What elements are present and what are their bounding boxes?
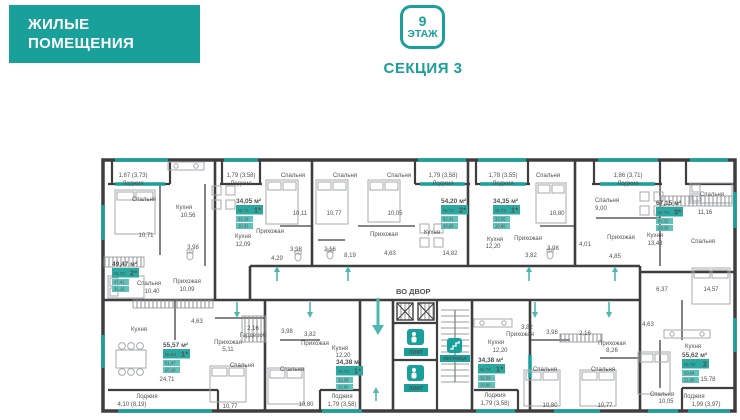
room-label: 2,16 xyxy=(247,326,259,332)
unit-number: № 72 xyxy=(443,208,454,213)
unit-subarea: 20,86 xyxy=(443,224,454,229)
unit-rooms: 1* xyxy=(354,367,361,376)
room-label: 3,82 xyxy=(304,332,316,338)
room-label: 3,98 xyxy=(546,330,558,336)
room-label: Прихожая xyxy=(370,232,398,238)
room-label: Спальня xyxy=(230,363,254,369)
unit-area: 55,62 м² xyxy=(682,352,708,359)
unit-subarea: 53,64 xyxy=(684,371,695,376)
room-label: Спальня xyxy=(280,367,304,373)
room-label: 4,10 (8,19) xyxy=(117,402,146,408)
entry-arrow-icon xyxy=(274,266,280,281)
room-label: 8,26 xyxy=(606,348,618,354)
room-label: 1,86 (3,71) xyxy=(613,173,642,179)
unit-badge[interactable]: 54,20 м²№ 722*52,4120,86 xyxy=(441,198,468,229)
room-label: Спальня xyxy=(650,392,674,398)
room-label: Спальня xyxy=(595,198,619,204)
room-label: Прихожая xyxy=(607,235,635,241)
room-label: Лоджия xyxy=(492,181,513,187)
unit-subarea: 65,32 xyxy=(658,219,669,224)
unit-rooms: 2 xyxy=(703,360,707,369)
unit-number: № 74 xyxy=(658,210,669,215)
room-label: 12,20 xyxy=(492,348,508,354)
room-label: 10,80 xyxy=(542,403,558,409)
unit-badge[interactable]: 55,57 м²№ 691*51,4720,16 xyxy=(163,342,190,373)
room-label: 1,79 (3,58) xyxy=(327,402,356,408)
room-label: Кухня xyxy=(487,237,503,243)
entry-arrow-icon xyxy=(373,387,379,401)
room-label: 4,63 xyxy=(642,322,654,328)
room-label: Спальня xyxy=(691,239,715,245)
room-label: 1,79 (3,58) xyxy=(226,173,255,179)
room-label: Кухня xyxy=(235,234,251,240)
room-label: Прихожая xyxy=(256,229,284,235)
room-label: Кухня xyxy=(131,327,147,333)
room-label: Кухня xyxy=(647,233,663,239)
room-label: 1,78 (3,55) xyxy=(488,173,517,179)
room-label: 9,00 xyxy=(595,206,607,212)
room-label: 4,29 xyxy=(271,256,283,262)
lift-label: ЛИФТ xyxy=(409,350,423,356)
unit-rooms: 2* xyxy=(130,269,137,278)
room-label: Спальня xyxy=(281,173,305,179)
room-label: 10,05 xyxy=(387,211,403,217)
elevator-2: ЛИФТ xyxy=(404,365,428,392)
room-label: 10,80 xyxy=(298,402,314,408)
floor-plan-page: ЖИЛЫЕ ПОМЕЩЕНИЯ 9 ЭТАЖ СЕКЦИЯ 3 xyxy=(0,0,740,420)
room-label: 1,87 (3,73) xyxy=(118,173,147,179)
room-label: Кухня xyxy=(424,230,440,236)
stairs-icon: ЛЕСТНИЦА xyxy=(440,338,470,362)
unit-number: № 78 xyxy=(684,362,695,367)
unit-subarea: 10,31 xyxy=(238,224,249,229)
courtyard-arrow-icon xyxy=(372,325,384,335)
unit-subarea: 10,80 xyxy=(338,385,349,390)
room-label: 4,63 xyxy=(384,251,396,257)
room-label: Гардероб xyxy=(240,333,267,339)
unit-subarea: 47,41 xyxy=(114,280,125,285)
room-label: Кухня xyxy=(176,205,192,211)
room-label: 6,37 xyxy=(656,287,668,293)
entry-arrow-icon xyxy=(307,302,313,318)
unit-rooms: 1* xyxy=(181,350,188,359)
elevator-shafts xyxy=(397,303,434,320)
courtyard-label: ВО ДВОР xyxy=(396,287,431,296)
room-label: 14,82 xyxy=(442,251,458,257)
unit-subarea: 32,59 xyxy=(338,378,349,383)
room-label: Лоджия xyxy=(230,181,251,187)
unit-number: № 73 xyxy=(495,208,506,213)
unit-number: № 71 xyxy=(238,208,249,213)
room-label: Кухня xyxy=(332,346,348,352)
room-label: 4,85 xyxy=(609,254,621,260)
room-label: Лоджия xyxy=(683,394,704,400)
unit-badge[interactable]: 34,35 м²№ 731*32,5610,80 xyxy=(493,198,520,229)
unit-badge[interactable]: 67,15 м²№ 743*65,3228,33 xyxy=(656,200,683,231)
entry-arrow-icon xyxy=(612,266,618,281)
room-label: 10,56 xyxy=(180,213,196,219)
room-label: Прихожая xyxy=(514,236,542,242)
room-label: 3,98 xyxy=(547,246,559,252)
room-label: 10,80 xyxy=(549,211,565,217)
room-label: 10,09 xyxy=(179,287,195,293)
room-label: 4,01 xyxy=(579,242,591,248)
room-label: 3,98 xyxy=(290,247,302,253)
room-label: 14,57 xyxy=(703,287,719,293)
unit-area: 67,15 м² xyxy=(656,200,682,207)
unit-rooms: 2* xyxy=(459,206,466,215)
unit-badge[interactable]: 49,47 м²№ 702*47,4131,15 xyxy=(112,261,139,292)
room-label: Кухня xyxy=(488,340,504,346)
room-label: Спальня xyxy=(533,367,557,373)
unit-subarea: 52,41 xyxy=(443,217,454,222)
unit-subarea: 10,80 xyxy=(495,224,506,229)
floor-plan-svg: ЛИФТ ЛИФТ ЛЕСТНИЦА ВО ДВОР 1,87 (3,73)Ло… xyxy=(0,0,740,420)
unit-rooms: 3* xyxy=(674,208,681,217)
entry-arrow-icon xyxy=(526,266,532,281)
room-label: Прихожая xyxy=(301,341,329,347)
unit-area: 34,38 м² xyxy=(336,359,362,366)
entry-arrow-icon xyxy=(532,302,538,318)
room-label: 12,09 xyxy=(235,242,251,248)
entry-arrow-icon xyxy=(606,302,612,318)
room-label: 3,82 xyxy=(525,253,537,259)
room-label: 3,98 xyxy=(187,245,199,251)
room-label: 2,16 xyxy=(579,331,591,337)
unit-badge[interactable]: 34,05 м²№ 711*32,1810,31 xyxy=(236,198,263,229)
unit-area: 49,47 м² xyxy=(112,261,138,268)
room-label: Спальня xyxy=(333,173,357,179)
room-label: 10,11 xyxy=(293,211,308,217)
room-label: Спальня xyxy=(132,197,156,203)
room-label: 3,82 xyxy=(521,325,533,331)
room-label: Спальня xyxy=(137,281,161,287)
room-label: Спальня xyxy=(536,173,560,179)
room-label: 11,16 xyxy=(698,210,713,216)
room-label: 10,40 xyxy=(144,289,160,295)
unit-subarea: 21,85 xyxy=(684,378,695,383)
lift-label: ЛИФТ xyxy=(409,386,423,392)
unit-subarea: 32,59 xyxy=(480,376,491,381)
entry-arrow-icon xyxy=(234,302,240,318)
unit-subarea: 28,33 xyxy=(658,226,669,231)
room-label: Лоджия xyxy=(432,181,453,187)
room-label: 10,77 xyxy=(597,403,613,409)
unit-number: № 69 xyxy=(165,352,176,357)
unit-number: № 75 xyxy=(338,369,349,374)
room-label: 10,05 xyxy=(658,399,674,405)
room-label: Спальня xyxy=(387,173,411,179)
room-label: Лоджия xyxy=(331,394,352,400)
unit-rooms: 1* xyxy=(511,206,518,215)
room-label: Лоджия xyxy=(484,393,505,399)
room-label: 1,99 (3,97) xyxy=(691,402,720,408)
room-label: 24,71 xyxy=(159,377,175,383)
stairs-label: ЛЕСТНИЦА xyxy=(443,356,466,361)
unit-number: № 76 xyxy=(480,367,491,372)
room-label: Прихожая xyxy=(598,341,626,347)
unit-badge[interactable]: 34,38 м²№ 761*32,5910,80 xyxy=(478,357,505,388)
room-label: Спальня xyxy=(591,367,615,373)
room-label: 8,19 xyxy=(344,253,356,259)
room-label: 10,77 xyxy=(222,404,238,410)
unit-area: 55,57 м² xyxy=(163,342,189,349)
entry-arrow-icon xyxy=(345,266,351,281)
room-label: 1,79 (3,58) xyxy=(480,401,509,407)
room-label: Лоджия xyxy=(617,181,638,187)
unit-area: 34,05 м² xyxy=(236,198,262,205)
unit-area: 34,38 м² xyxy=(478,357,504,364)
room-label: 3,98 xyxy=(281,329,293,335)
room-label: Прихожая xyxy=(173,279,201,285)
unit-rooms: 1* xyxy=(496,365,503,374)
room-label: 1,79 (3,58) xyxy=(428,173,457,179)
unit-subarea: 32,56 xyxy=(495,217,506,222)
unit-number: № 70 xyxy=(114,271,125,276)
room-label: 2,16 xyxy=(324,247,336,253)
unit-area: 34,35 м² xyxy=(493,198,519,205)
room-label: 10,71 xyxy=(138,233,154,239)
room-label: Кухня xyxy=(685,344,701,350)
room-label: 13,48 xyxy=(647,241,663,247)
room-label: Прихожая xyxy=(214,340,242,346)
unit-subarea: 32,18 xyxy=(238,217,249,222)
room-label: 10,77 xyxy=(326,211,342,217)
room-label: Лоджия xyxy=(136,394,157,400)
unit-subarea: 51,47 xyxy=(165,361,176,366)
room-label: Прихожая xyxy=(506,332,534,338)
unit-subarea: 20,16 xyxy=(165,368,176,373)
room-label: 4,63 xyxy=(191,319,203,325)
unit-rooms: 1* xyxy=(254,206,261,215)
room-label: Лоджия xyxy=(122,181,143,187)
room-label: Спальня xyxy=(700,192,724,198)
room-label: 15,78 xyxy=(700,377,716,383)
room-label: 5,11 xyxy=(222,347,234,353)
unit-subarea: 10,80 xyxy=(480,383,491,388)
unit-area: 54,20 м² xyxy=(441,198,467,205)
room-label: 12,20 xyxy=(485,244,501,250)
unit-subarea: 31,15 xyxy=(114,287,125,292)
